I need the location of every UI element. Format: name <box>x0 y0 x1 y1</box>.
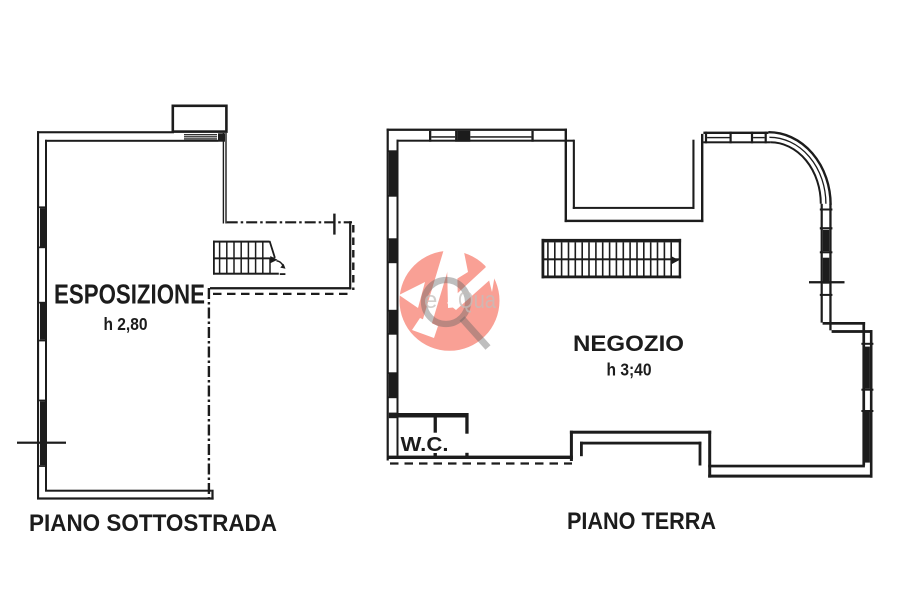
svg-text:ESPOSIZIONE: ESPOSIZIONE <box>54 279 205 310</box>
svg-text:PIANO SOTTOSTRADA: PIANO SOTTOSTRADA <box>29 510 277 537</box>
svg-text:e: e <box>424 287 437 314</box>
svg-text:Qua: Qua <box>458 287 497 314</box>
svg-text:h 2,80: h 2,80 <box>104 314 148 334</box>
svg-text:PIANO TERRA: PIANO TERRA <box>567 508 716 535</box>
svg-text:W.C.: W.C. <box>401 434 449 456</box>
svg-text:NEGOZIO: NEGOZIO <box>573 331 684 356</box>
svg-text:h 3;40: h 3;40 <box>607 360 652 380</box>
